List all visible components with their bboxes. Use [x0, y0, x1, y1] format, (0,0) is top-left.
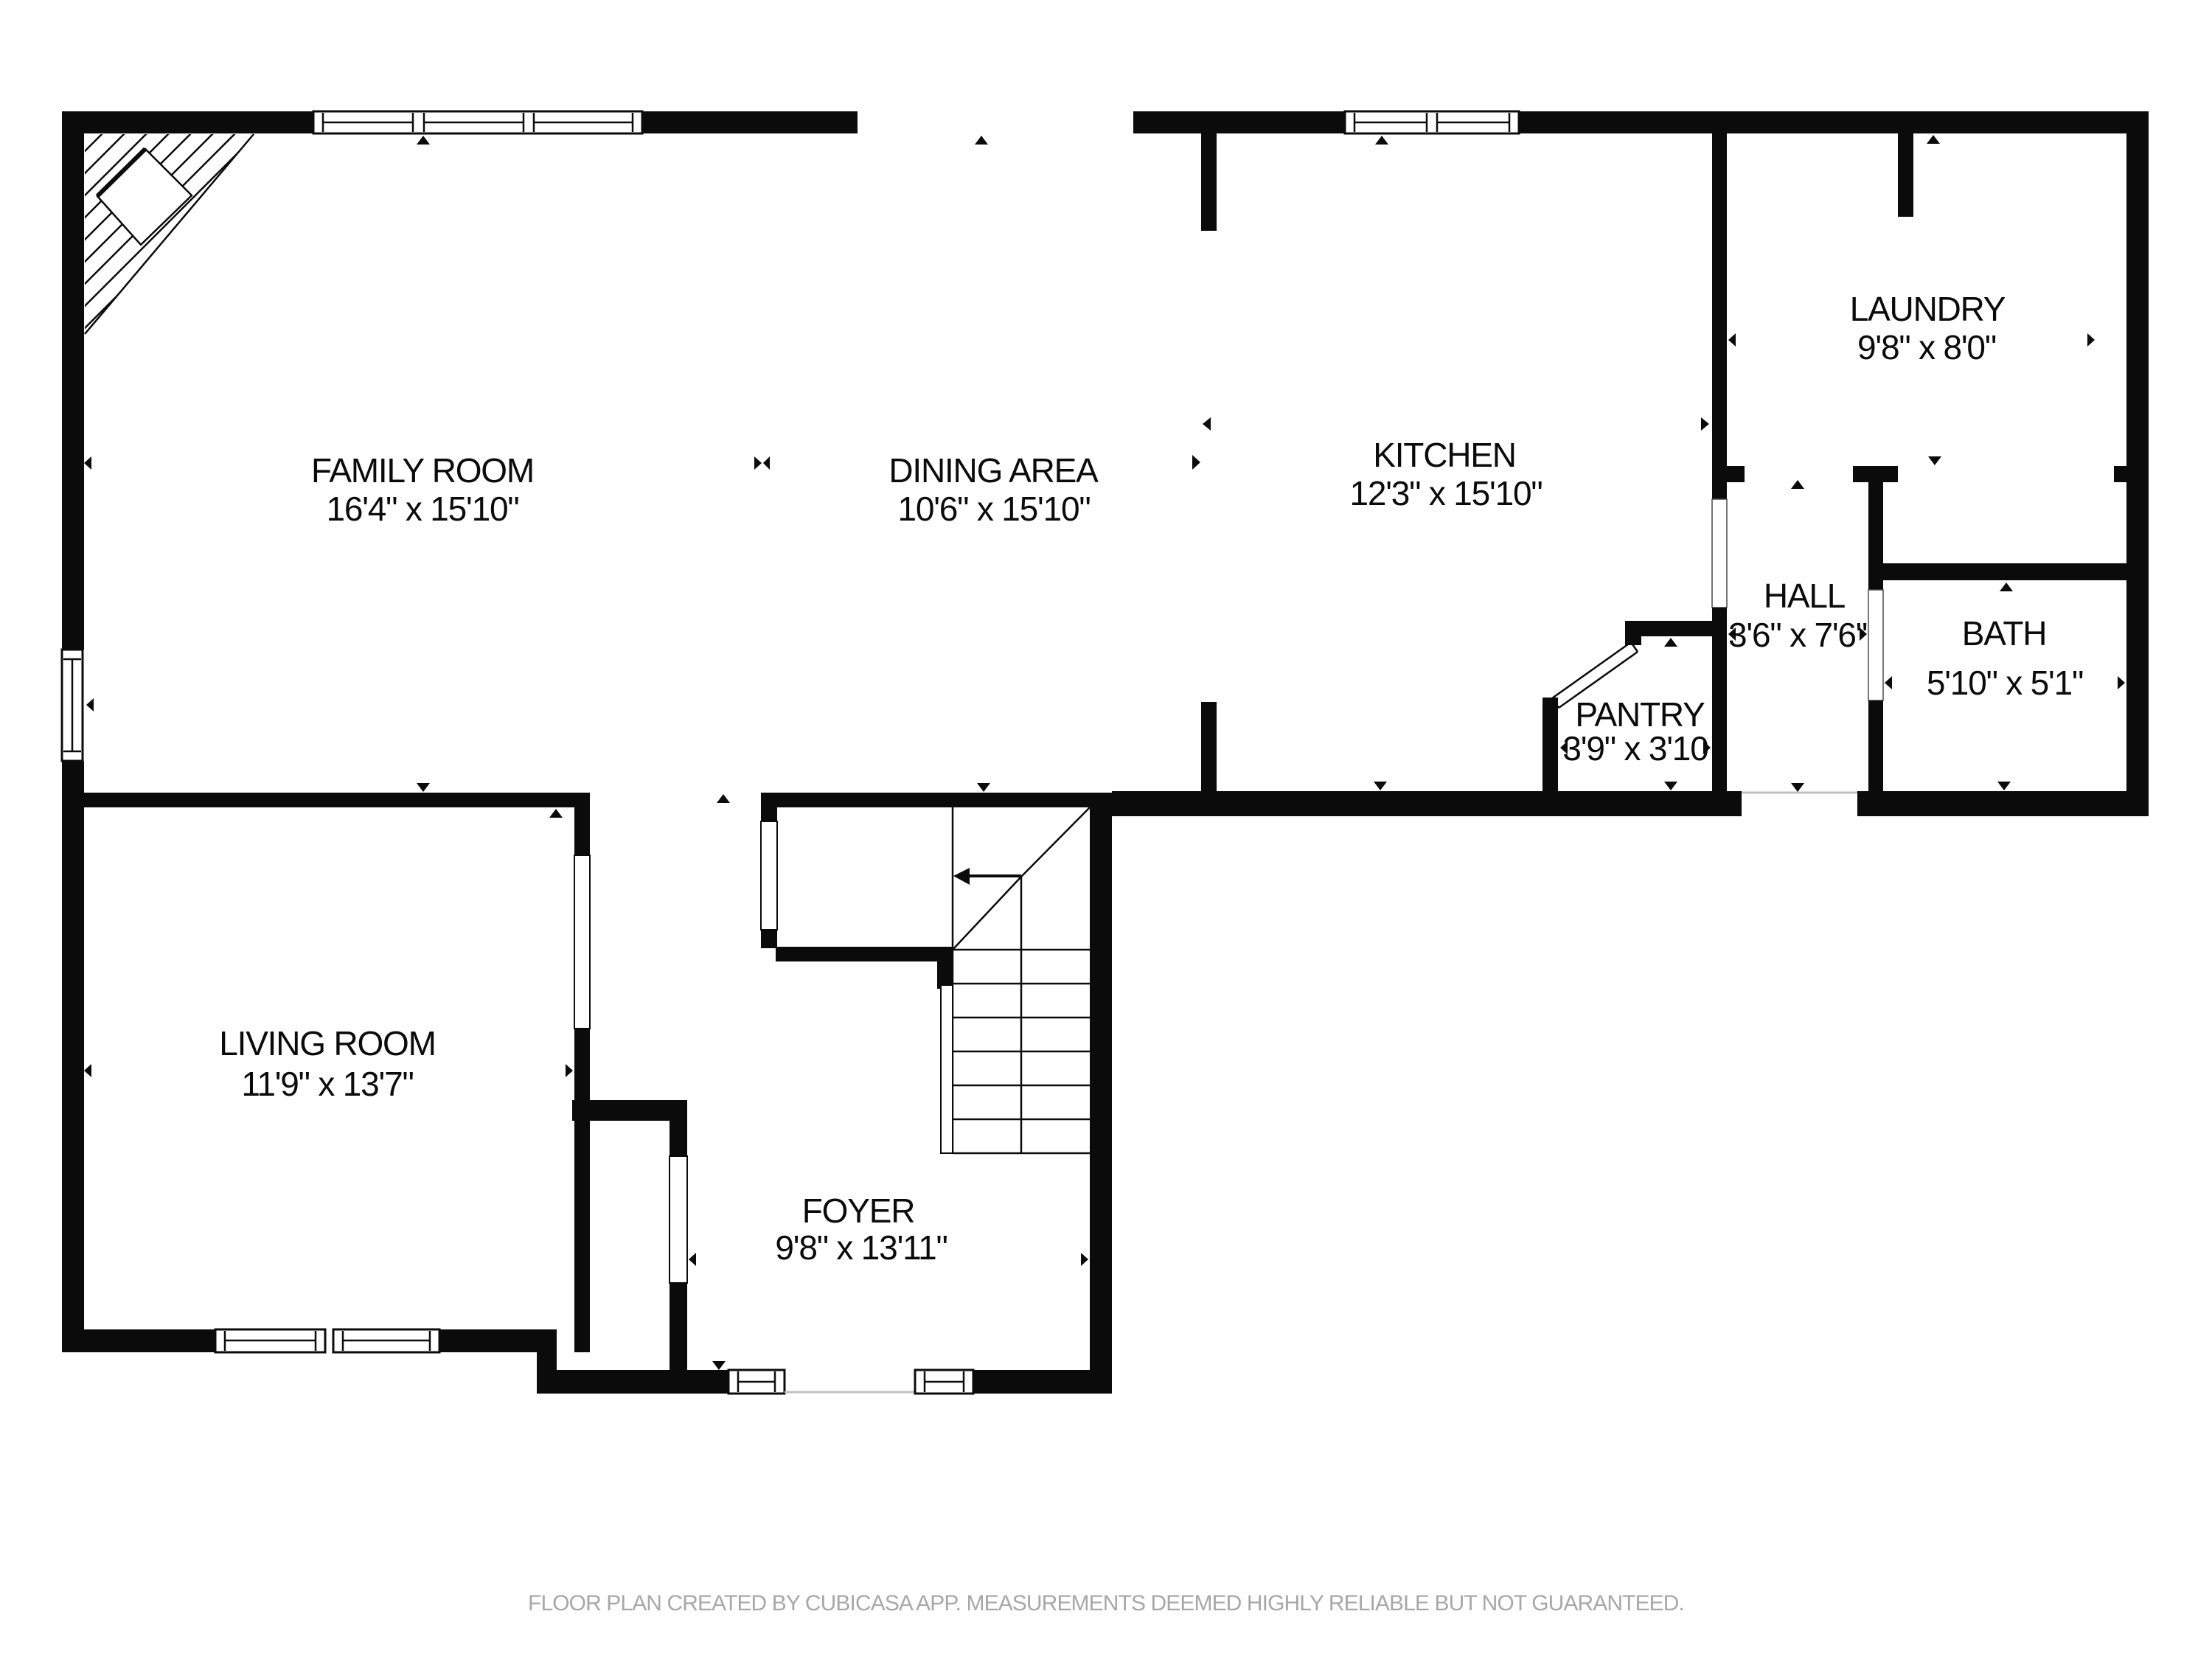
svg-text:3'9" x 3'10: 3'9" x 3'10	[1562, 729, 1708, 768]
svg-text:9'8" x 8'0": 9'8" x 8'0"	[1857, 328, 1996, 366]
svg-text:5'10" x 5'1": 5'10" x 5'1"	[1927, 664, 2083, 702]
svg-text:11'9" x 13'7": 11'9" x 13'7"	[241, 1065, 413, 1103]
svg-text:DINING AREA: DINING AREA	[888, 451, 1099, 490]
svg-text:LAUNDRY: LAUNDRY	[1850, 290, 2006, 328]
svg-text:HALL: HALL	[1764, 577, 1846, 615]
svg-text:16'4" x 15'10": 16'4" x 15'10"	[326, 490, 518, 528]
svg-text:BATH: BATH	[1962, 614, 2046, 653]
svg-text:FOYER: FOYER	[802, 1192, 914, 1230]
svg-text:PANTRY: PANTRY	[1575, 695, 1705, 734]
svg-text:9'8" x 13'11": 9'8" x 13'11"	[775, 1228, 947, 1267]
svg-text:FAMILY ROOM: FAMILY ROOM	[311, 451, 534, 490]
svg-text:10'6" x 15'10": 10'6" x 15'10"	[897, 490, 1090, 528]
svg-text:KITCHEN: KITCHEN	[1373, 436, 1516, 474]
svg-text:FLOOR PLAN CREATED BY CUBICASA: FLOOR PLAN CREATED BY CUBICASA APP. MEAS…	[528, 1591, 1684, 1615]
svg-text:12'3" x 15'10": 12'3" x 15'10"	[1349, 474, 1542, 512]
svg-text:LIVING ROOM: LIVING ROOM	[219, 1024, 436, 1062]
svg-text:3'6" x 7'6": 3'6" x 7'6"	[1728, 616, 1867, 654]
